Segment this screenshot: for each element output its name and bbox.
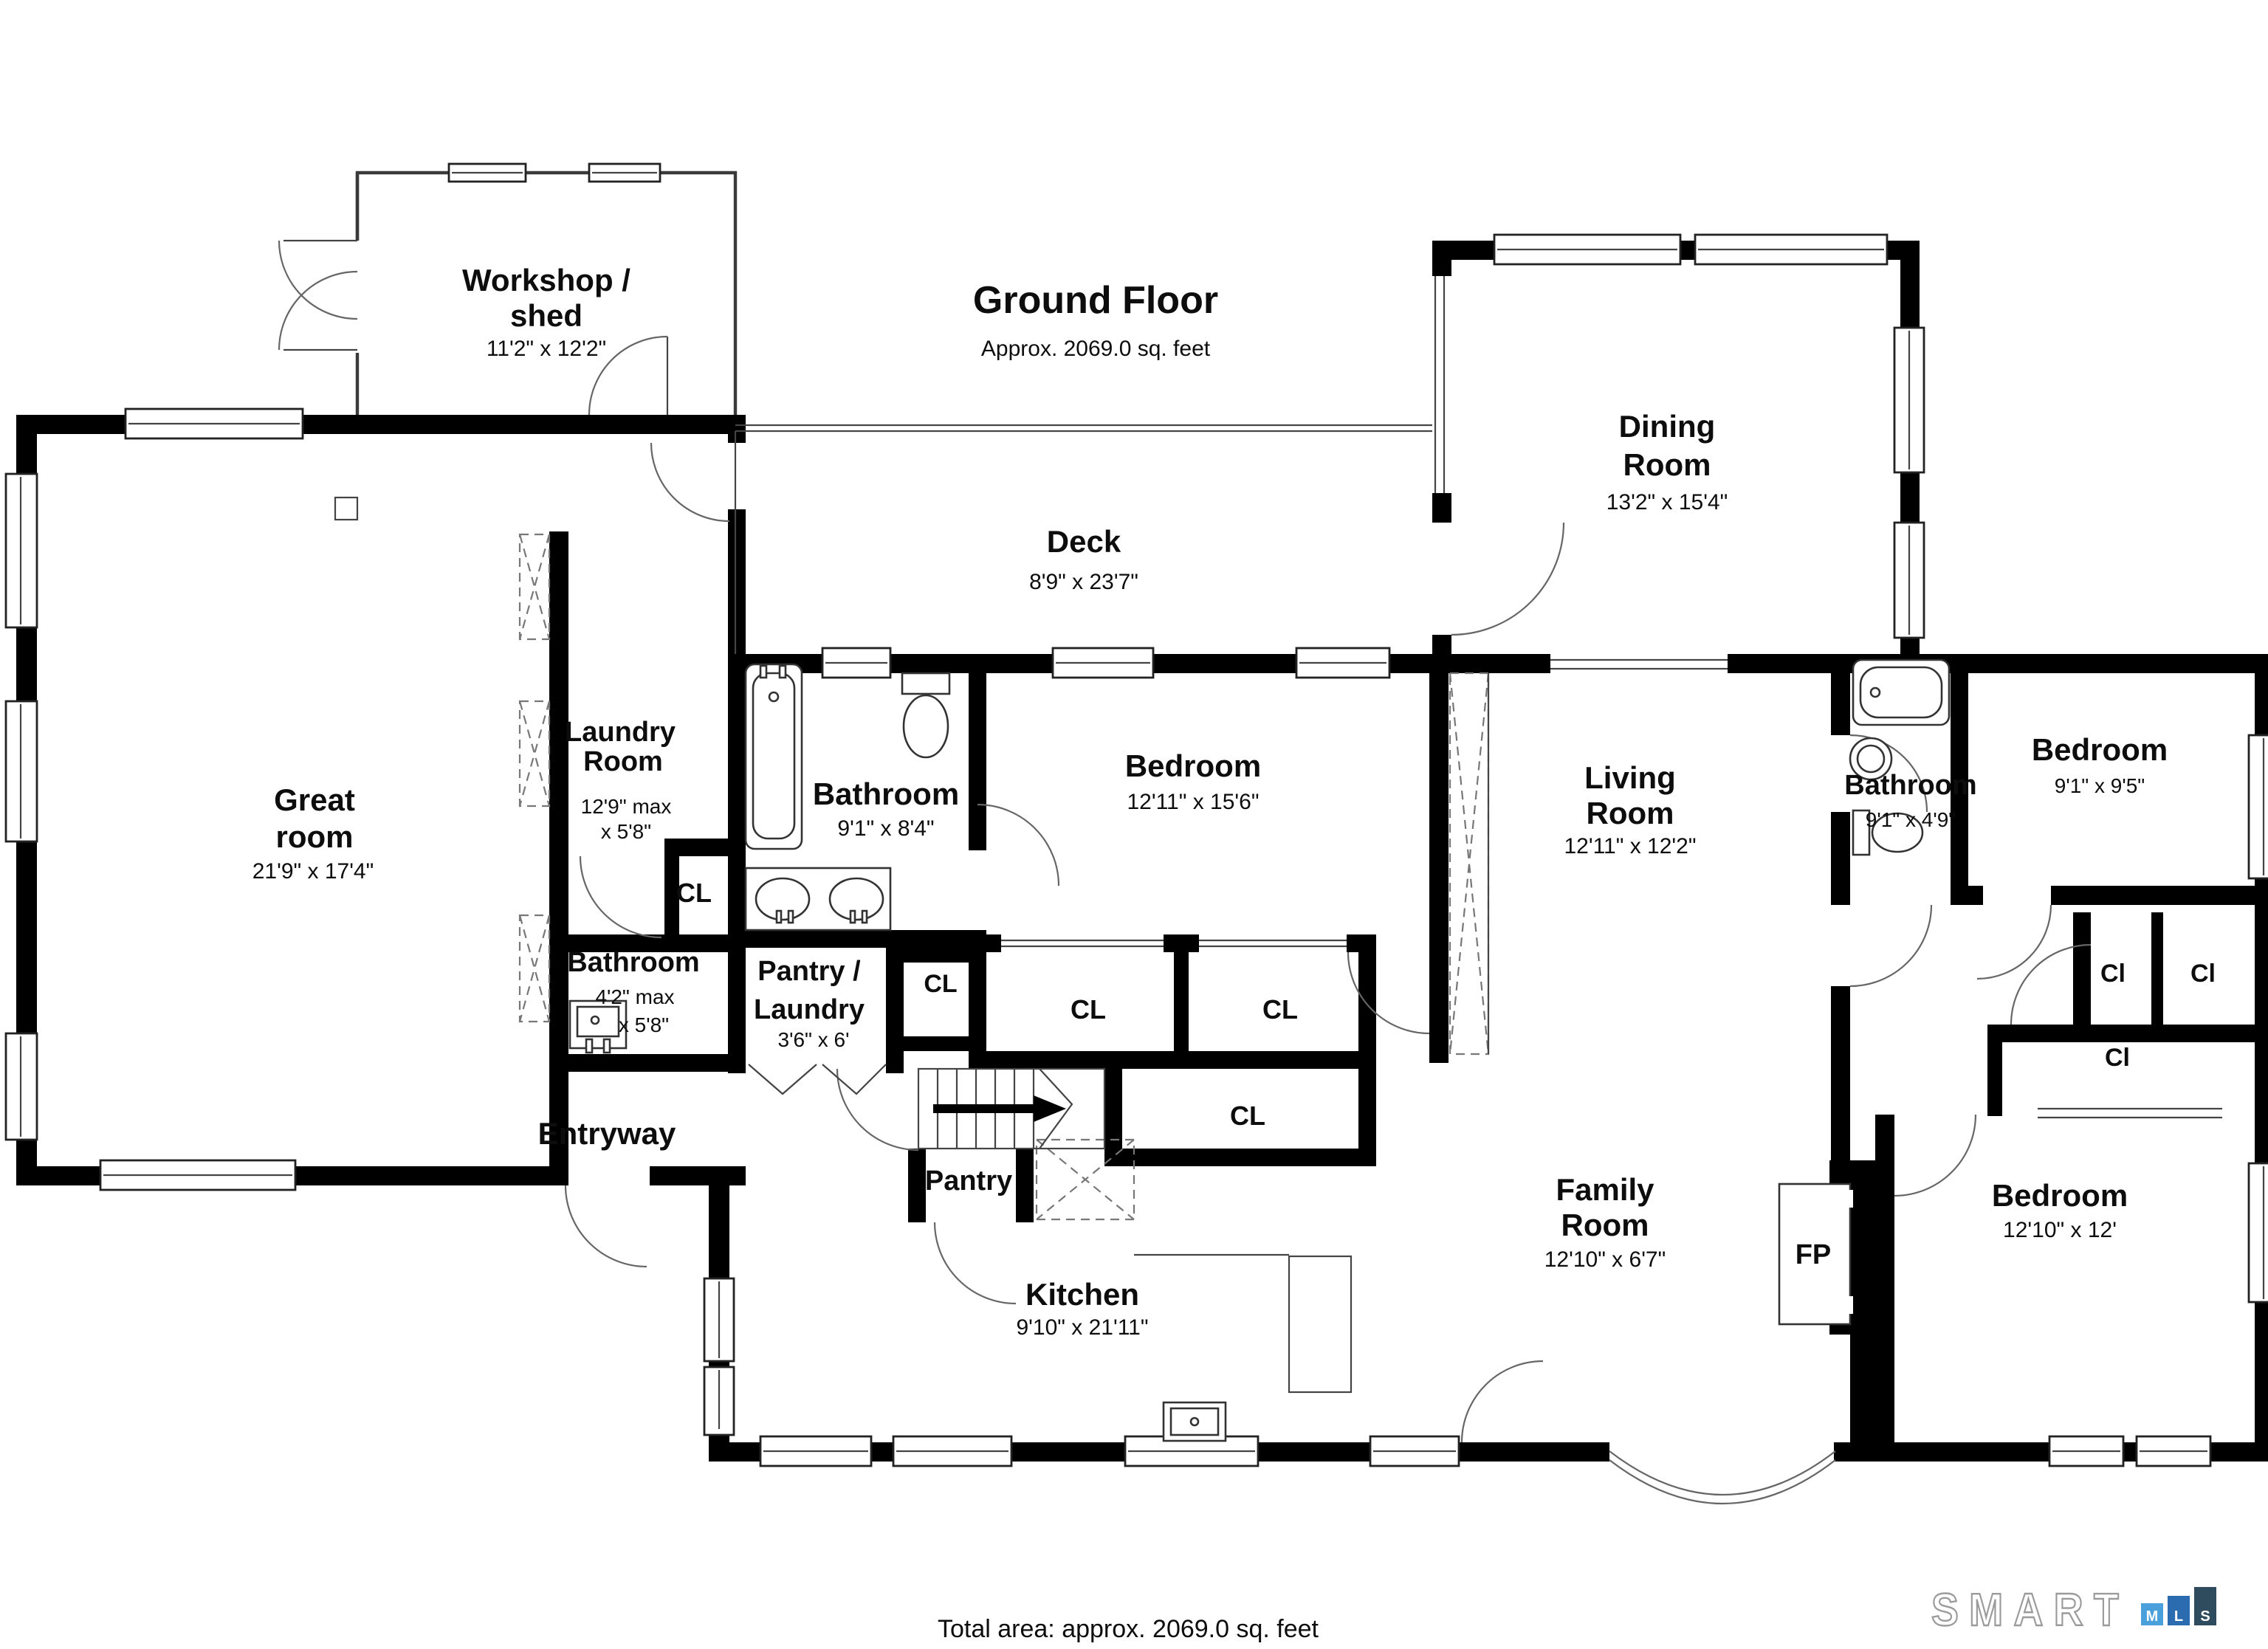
closet-label: CL — [1262, 994, 1298, 1025]
window — [1053, 648, 1153, 678]
hall-door-arc — [1850, 905, 1931, 986]
room-label-bedroom-se: Bedroom — [1992, 1178, 2128, 1213]
room-dims-pantry-laundry: 3'6" x 6' — [778, 1028, 850, 1051]
window — [2137, 1436, 2210, 1466]
room-dims-bathroom-hall: 9'1" x 4'9" — [1866, 808, 1956, 831]
window — [893, 1436, 1011, 1466]
closet-label: Cl — [2100, 960, 2126, 988]
total-area-text: Total area: approx. 2069.0 sq. feet — [938, 1615, 1319, 1643]
room-dims-living: 12'11" x 12'2" — [1564, 834, 1697, 858]
closet-label: CL — [1071, 994, 1106, 1025]
bathroom-small-door-arc — [580, 856, 661, 937]
room-label-living: Living — [1584, 760, 1676, 795]
window — [6, 701, 37, 841]
room-label-deck: Deck — [1047, 524, 1121, 559]
room-label-workshop: Workshop / — [462, 263, 630, 297]
smart-mls-logo: SMART M L S — [1931, 1585, 2216, 1636]
window — [760, 1436, 871, 1466]
dining-slider-door — [1435, 276, 1564, 635]
room-label-dining: Dining — [1619, 409, 1716, 444]
logo-letter-m: M — [2146, 1608, 2159, 1625]
fireplace-label: FP — [1795, 1239, 1832, 1270]
fixtures — [570, 660, 1949, 1504]
bathtub — [746, 664, 802, 849]
room-label-living-2: Room — [1587, 796, 1674, 830]
room-label-workshop-2: shed — [510, 298, 583, 333]
room-dims-great: 21'9" x 17'4" — [252, 859, 374, 884]
window — [6, 474, 37, 627]
logo-letter-l: L — [2174, 1608, 2183, 1625]
room-dims-workshop: 11'2" x 12'2" — [487, 337, 606, 361]
closet-label: Cl — [2105, 1044, 2130, 1072]
window — [1494, 235, 1680, 264]
window — [704, 1278, 734, 1361]
window — [704, 1367, 734, 1435]
window — [2249, 1163, 2268, 1302]
bedroom-se-door-arc — [1894, 1115, 1976, 1196]
walls — [16, 241, 2268, 1462]
room-label-great-2: room — [276, 819, 354, 854]
room-label-pantry-laundry: Pantry / — [757, 956, 861, 987]
room-dims-bedroom-se: 12'10" x 12' — [2003, 1218, 2117, 1242]
kitchen-rear-door-arc — [1462, 1361, 1543, 1442]
room-label-dining-2: Room — [1623, 447, 1711, 482]
window — [2049, 1436, 2123, 1466]
window — [1894, 523, 1924, 638]
room-label-entryway: Entryway — [538, 1116, 676, 1151]
room-label-bedroom-ne: Bedroom — [2032, 732, 2168, 767]
closet-label: CL — [924, 970, 957, 998]
closet-label: Cl — [2190, 960, 2216, 988]
bedroom-ne-door-arc — [1977, 905, 2051, 979]
bathroom-main-door-arc — [977, 805, 1059, 886]
room-dims-family: 12'10" x 6'7" — [1544, 1247, 1666, 1272]
window — [1894, 328, 1924, 472]
entry-door-arc — [566, 1185, 647, 1267]
room-dims-bedroom-main: 12'11" x 15'6" — [1127, 790, 1260, 814]
room-label-bedroom-main: Bedroom — [1125, 748, 1261, 783]
room-label-family-2: Room — [1561, 1208, 1649, 1242]
logo-word: SMART — [1931, 1585, 2129, 1636]
room-label-bathroom-small: Bathroom — [567, 947, 699, 978]
window — [1695, 235, 1887, 264]
window — [822, 648, 890, 678]
window — [449, 164, 526, 182]
room-label-laundry: Laundry — [565, 717, 676, 748]
logo-letter-s: S — [2200, 1608, 2210, 1625]
page-subtitle: Approx. 2069.0 sq. feet — [981, 337, 1211, 361]
floor-plan-page: { "header": {"title": "Ground Floor", "s… — [0, 0, 2268, 1649]
staircase — [918, 1069, 1104, 1149]
room-label-laundry-2: Room — [583, 746, 663, 777]
pantry-door-arc — [935, 1222, 1016, 1304]
window — [2249, 735, 2268, 878]
room-label-pantry-laundry-2: Laundry — [754, 994, 865, 1025]
window — [100, 1160, 295, 1190]
room-dims-dining: 13'2" x 15'4" — [1606, 490, 1728, 514]
room-dims-deck: 8'9" x 23'7" — [1029, 570, 1138, 594]
closet-label: CL — [676, 878, 712, 908]
room-dims-laundry-2: x 5'8" — [601, 820, 651, 843]
small-sink — [570, 1001, 626, 1053]
room-label-bathroom-main: Bathroom — [813, 777, 959, 811]
room-label-great: Great — [274, 782, 355, 817]
double-vanity — [746, 868, 890, 930]
stairs-door-arc — [837, 1069, 918, 1150]
page-title: Ground Floor — [973, 279, 1218, 322]
dining-cased-opening — [1550, 660, 1728, 669]
curved-patio-edge — [1609, 1451, 1835, 1495]
room-dims-bedroom-ne: 9'1" x 9'5" — [2055, 774, 2145, 797]
room-label-pantry: Pantry — [925, 1166, 1012, 1197]
toilet — [902, 673, 949, 757]
stairs-up-arrow — [933, 1095, 1066, 1122]
room-dims-laundry: 12'9" max — [581, 795, 672, 818]
floor-plan: Ground Floor Approx. 2069.0 sq. feet Wor… — [0, 0, 2268, 1649]
window — [1370, 1436, 1459, 1466]
window — [589, 164, 660, 182]
bathtub-hall — [1853, 660, 1949, 725]
room-label-kitchen: Kitchen — [1025, 1277, 1139, 1312]
room-dims-kitchen: 9'10" x 21'11" — [1017, 1315, 1149, 1340]
room-label-bathroom-hall: Bathroom — [1844, 770, 1976, 801]
window — [6, 1033, 37, 1140]
window — [126, 409, 303, 438]
kitchen-counter — [1134, 1255, 1351, 1392]
window — [1296, 648, 1389, 678]
room-label-family: Family — [1556, 1172, 1654, 1207]
room-dims-bathroom-small-2: x 5'8" — [619, 1013, 669, 1036]
kitchen-sink — [1164, 1402, 1226, 1441]
closet-label: CL — [1230, 1101, 1265, 1131]
deck-vestibule-door-arc — [651, 443, 729, 521]
room-dims-bathroom-small: 4'2" max — [595, 985, 674, 1008]
room-dims-bathroom-main: 9'1" x 8'4" — [837, 816, 934, 841]
